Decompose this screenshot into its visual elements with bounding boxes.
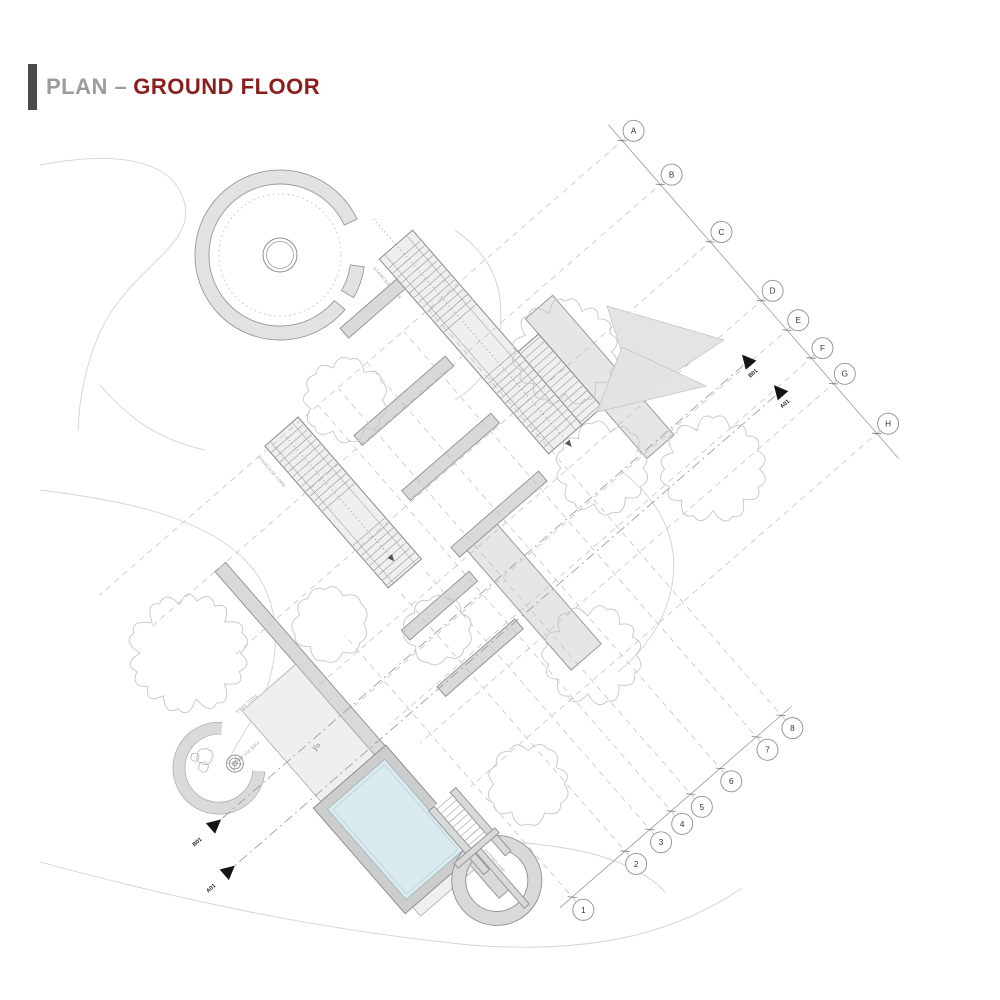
section-a01-label-top: A01 <box>780 399 792 410</box>
grid-bubbles: ABCDEFGH12345678 <box>573 120 899 920</box>
shrub-sketch <box>188 743 219 774</box>
grid-bubble-C: C <box>711 221 732 242</box>
grid-bubble-D: D <box>762 280 783 301</box>
grid-bubble-F: F <box>812 338 833 359</box>
canopy-triangles <box>597 306 724 412</box>
fire-pit <box>154 712 274 833</box>
grid-bubble-8: 8 <box>782 718 803 739</box>
svg-text:G: G <box>842 370 848 379</box>
grid-bubble-4: 4 <box>672 813 693 834</box>
section-a01-label-bottom: A01 <box>206 883 218 894</box>
svg-text:7: 7 <box>765 746 770 755</box>
grid-bubble-6: 6 <box>721 771 742 792</box>
grid-bubble-G: G <box>834 363 855 384</box>
number-dimension-line <box>560 706 792 907</box>
section-a01-arrow-top <box>769 381 789 401</box>
section-b01-label-top: B01 <box>748 368 760 379</box>
tree-canopy <box>660 416 765 521</box>
svg-text:8: 8 <box>790 724 795 733</box>
title-highlight: GROUND FLOOR <box>133 74 320 99</box>
page-title: PLAN –GROUND FLOOR <box>46 74 320 100</box>
section-b01: B01 B01 <box>186 350 763 856</box>
stair-direction-arrow <box>565 440 574 449</box>
circular-pavilion <box>195 170 364 340</box>
svg-text:E: E <box>795 316 801 325</box>
grid-bubble-3: 3 <box>651 832 672 853</box>
section-b01-arrow-bottom <box>206 814 226 834</box>
pavilion-center-column <box>263 238 297 272</box>
svg-text:H: H <box>885 420 891 429</box>
grid-bubble-B: B <box>661 164 682 185</box>
grid-bubble-E: E <box>788 310 809 331</box>
grid-bubble-A: A <box>623 120 644 141</box>
svg-text:B: B <box>669 170 675 179</box>
grid-bubble-2: 2 <box>626 853 647 874</box>
svg-text:C: C <box>719 228 725 237</box>
section-b01-label-bottom: B01 <box>192 837 204 848</box>
svg-text:5: 5 <box>700 803 705 812</box>
svg-text:D: D <box>770 287 776 296</box>
svg-text:6: 6 <box>729 777 734 786</box>
section-b01-arrow-top <box>737 350 757 370</box>
svg-text:4: 4 <box>680 820 685 829</box>
svg-text:F: F <box>820 344 825 353</box>
grid-bubble-1: 1 <box>573 899 594 920</box>
floor-plan-canvas: STAIRCASE CORE STAIRCASE CORE <box>0 0 1000 1000</box>
svg-text:A: A <box>631 127 637 136</box>
grid-bubble-7: 7 <box>757 739 778 760</box>
section-a01-arrow-bottom <box>220 860 240 880</box>
plan-title: PLAN –GROUND FLOOR <box>28 64 320 110</box>
grid-bubble-5: 5 <box>691 796 712 817</box>
svg-text:1: 1 <box>581 906 586 915</box>
title-accent-bar <box>28 64 37 110</box>
svg-text:2: 2 <box>634 860 639 869</box>
tree-canopy <box>488 744 568 825</box>
title-prefix: PLAN – <box>46 74 127 99</box>
grid-bubble-H: H <box>878 413 899 434</box>
svg-text:3: 3 <box>659 838 664 847</box>
tree-canopy <box>129 594 248 712</box>
